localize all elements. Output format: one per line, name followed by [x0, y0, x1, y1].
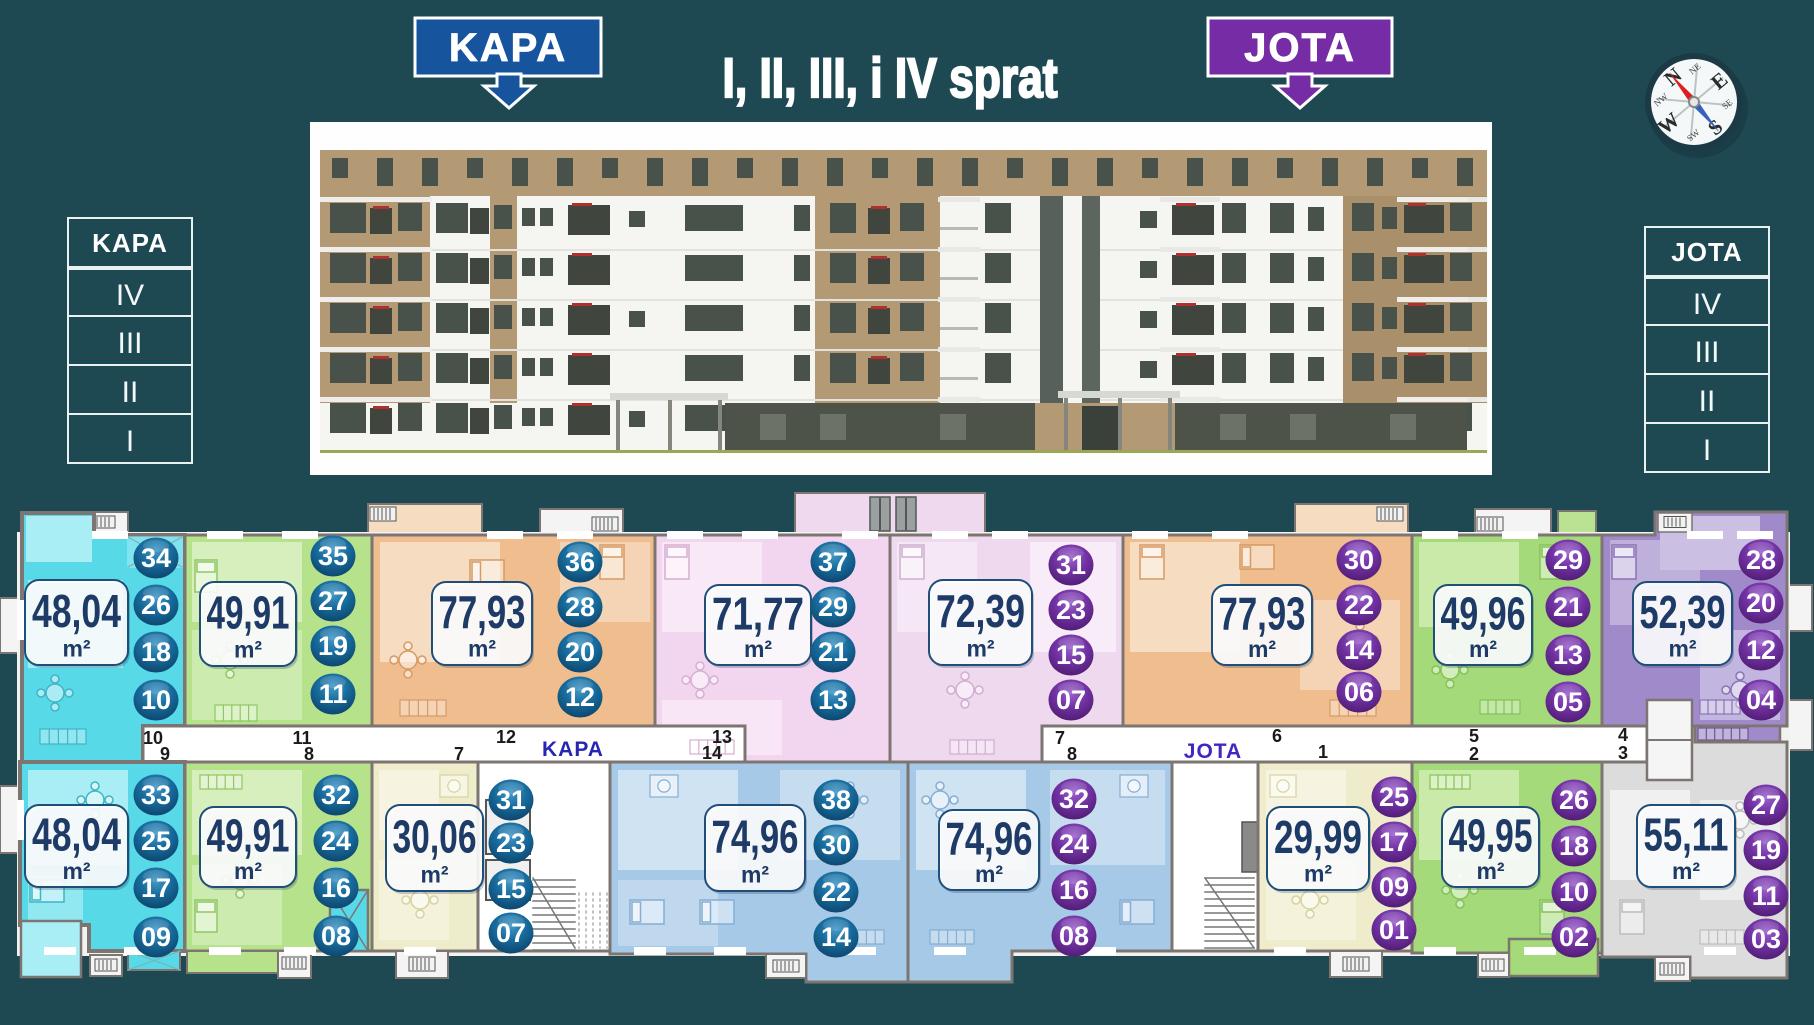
svg-text:14: 14 — [702, 743, 722, 763]
svg-text:6: 6 — [1272, 726, 1282, 746]
svg-text:12: 12 — [496, 727, 516, 747]
svg-text:19: 19 — [1751, 835, 1781, 865]
svg-text:23: 23 — [1056, 595, 1086, 625]
svg-text:25: 25 — [141, 826, 171, 856]
svg-text:2: 2 — [1469, 744, 1479, 764]
svg-text:m²: m² — [1476, 858, 1504, 884]
svg-text:49,91: 49,91 — [207, 809, 290, 861]
svg-text:37: 37 — [818, 547, 848, 577]
svg-text:15: 15 — [1056, 640, 1086, 670]
svg-text:52,39: 52,39 — [1640, 586, 1726, 638]
svg-text:04: 04 — [1746, 685, 1776, 715]
svg-text:m²: m² — [468, 636, 496, 662]
svg-text:09: 09 — [141, 922, 171, 952]
svg-text:30,06: 30,06 — [393, 811, 477, 863]
svg-text:1: 1 — [1318, 742, 1328, 762]
svg-text:m²: m² — [741, 861, 769, 887]
svg-text:16: 16 — [1059, 875, 1089, 905]
svg-text:7: 7 — [1055, 728, 1065, 748]
svg-text:49,91: 49,91 — [207, 587, 290, 639]
svg-text:28: 28 — [565, 592, 595, 622]
svg-text:49,95: 49,95 — [1449, 809, 1533, 861]
svg-text:38: 38 — [821, 785, 851, 815]
svg-text:13: 13 — [818, 685, 848, 715]
svg-text:25: 25 — [1379, 782, 1409, 812]
svg-text:19: 19 — [318, 631, 348, 661]
svg-text:JOTA: JOTA — [1671, 237, 1742, 267]
svg-text:8: 8 — [304, 744, 314, 764]
svg-text:29: 29 — [818, 592, 848, 622]
svg-text:III: III — [117, 327, 142, 360]
svg-text:m²: m² — [62, 858, 90, 884]
svg-text:09: 09 — [1379, 872, 1409, 902]
svg-text:II: II — [122, 376, 139, 409]
svg-text:17: 17 — [141, 873, 171, 903]
svg-text:72,39: 72,39 — [936, 585, 1025, 637]
svg-text:13: 13 — [1553, 640, 1583, 670]
svg-text:48,04: 48,04 — [32, 585, 121, 637]
svg-text:m²: m² — [744, 636, 772, 662]
svg-text:I, II, III, i IV sprat: I, II, III, i IV sprat — [723, 46, 1058, 109]
svg-text:34: 34 — [141, 543, 171, 573]
svg-text:4: 4 — [1618, 725, 1628, 745]
svg-text:35: 35 — [318, 541, 348, 571]
svg-text:7: 7 — [454, 744, 464, 764]
svg-text:49,96: 49,96 — [1441, 587, 1526, 639]
svg-text:21: 21 — [818, 637, 848, 667]
svg-text:JOTA: JOTA — [1244, 26, 1356, 70]
svg-text:36: 36 — [565, 547, 595, 577]
svg-text:IV: IV — [116, 279, 144, 312]
svg-text:18: 18 — [141, 637, 171, 667]
svg-text:11: 11 — [319, 679, 348, 709]
svg-text:05: 05 — [1553, 687, 1583, 717]
svg-text:m²: m² — [1668, 636, 1696, 662]
svg-text:24: 24 — [1059, 829, 1089, 859]
svg-text:21: 21 — [1553, 592, 1583, 622]
svg-text:KAPA: KAPA — [92, 228, 168, 258]
svg-text:74,96: 74,96 — [946, 812, 1033, 864]
svg-text:18: 18 — [1559, 831, 1589, 861]
svg-text:31: 31 — [496, 785, 526, 815]
svg-text:08: 08 — [321, 921, 351, 951]
svg-text:27: 27 — [318, 586, 348, 616]
svg-text:74,96: 74,96 — [712, 811, 799, 863]
svg-text:11: 11 — [1752, 881, 1781, 911]
svg-text:KAPA: KAPA — [542, 738, 604, 761]
svg-text:03: 03 — [1751, 924, 1781, 954]
svg-text:IV: IV — [1693, 288, 1721, 321]
svg-text:10: 10 — [1559, 877, 1589, 907]
svg-text:77,93: 77,93 — [1219, 587, 1306, 639]
svg-text:01: 01 — [1379, 915, 1409, 945]
svg-text:m²: m² — [975, 861, 1003, 887]
svg-text:m²: m² — [1672, 858, 1700, 884]
svg-text:I: I — [1703, 434, 1711, 467]
svg-text:8: 8 — [1067, 744, 1077, 764]
svg-text:26: 26 — [1559, 785, 1589, 815]
svg-text:15: 15 — [496, 874, 526, 904]
svg-text:12: 12 — [565, 682, 595, 712]
svg-text:07: 07 — [1056, 685, 1086, 715]
svg-text:m²: m² — [62, 636, 90, 662]
svg-text:32: 32 — [1059, 784, 1089, 814]
svg-text:22: 22 — [1344, 590, 1374, 620]
svg-text:28: 28 — [1746, 545, 1776, 575]
svg-text:77,93: 77,93 — [439, 586, 526, 638]
svg-text:3: 3 — [1618, 743, 1628, 763]
svg-text:II: II — [1699, 385, 1716, 418]
svg-text:14: 14 — [1344, 635, 1374, 665]
svg-text:22: 22 — [821, 877, 851, 907]
svg-text:30: 30 — [1344, 545, 1374, 575]
svg-text:71,77: 71,77 — [712, 587, 804, 639]
svg-text:m²: m² — [420, 861, 448, 887]
svg-text:m²: m² — [1469, 636, 1497, 662]
svg-text:08: 08 — [1059, 921, 1089, 951]
svg-text:m²: m² — [1304, 861, 1332, 887]
svg-text:9: 9 — [160, 744, 170, 764]
svg-text:14: 14 — [821, 922, 851, 952]
svg-text:29,99: 29,99 — [1274, 811, 1362, 863]
svg-text:KAPA: KAPA — [449, 26, 567, 70]
svg-text:27: 27 — [1751, 790, 1781, 820]
svg-text:m²: m² — [234, 637, 262, 663]
svg-text:06: 06 — [1344, 677, 1374, 707]
svg-text:31: 31 — [1056, 550, 1086, 580]
svg-text:24: 24 — [321, 826, 351, 856]
svg-text:55,11: 55,11 — [1644, 809, 1729, 861]
svg-text:10: 10 — [141, 685, 171, 715]
svg-text:m²: m² — [234, 858, 262, 884]
svg-text:23: 23 — [496, 828, 526, 858]
svg-text:26: 26 — [141, 590, 171, 620]
svg-text:5: 5 — [1469, 726, 1479, 746]
svg-text:29: 29 — [1553, 545, 1583, 575]
svg-text:30: 30 — [821, 830, 851, 860]
svg-text:07: 07 — [496, 918, 526, 948]
svg-text:m²: m² — [1248, 636, 1276, 662]
svg-text:20: 20 — [565, 637, 595, 667]
svg-text:I: I — [126, 425, 134, 458]
svg-text:17: 17 — [1379, 827, 1409, 857]
svg-text:48,04: 48,04 — [32, 809, 121, 861]
svg-text:32: 32 — [321, 780, 351, 810]
svg-text:33: 33 — [141, 780, 171, 810]
svg-text:12: 12 — [1746, 635, 1776, 665]
svg-text:JOTA: JOTA — [1184, 740, 1242, 763]
svg-text:02: 02 — [1559, 922, 1589, 952]
svg-text:20: 20 — [1746, 588, 1776, 618]
svg-text:III: III — [1694, 336, 1719, 369]
svg-text:16: 16 — [321, 873, 351, 903]
svg-text:m²: m² — [966, 636, 994, 662]
